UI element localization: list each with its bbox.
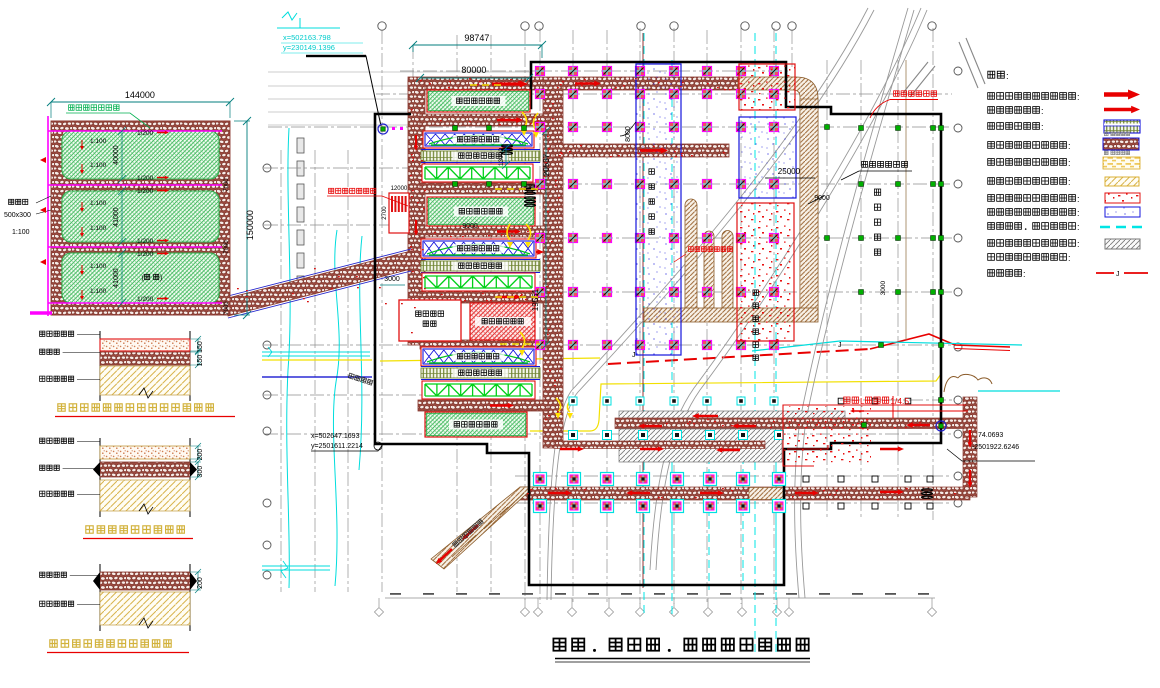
svg-text::: : — [1077, 194, 1080, 204]
svg-text:J: J — [1116, 271, 1120, 278]
svg-text:150: 150 — [197, 341, 204, 353]
svg-text:12000: 12000 — [391, 186, 408, 192]
svg-text:L: L — [860, 396, 865, 406]
svg-text:1/200: 1/200 — [137, 251, 154, 258]
svg-text:150000: 150000 — [245, 210, 255, 240]
svg-text::: : — [1023, 269, 1026, 279]
svg-text:-2501922.6246: -2501922.6246 — [972, 444, 1019, 451]
svg-text:1:100: 1:100 — [90, 162, 107, 169]
svg-text::: : — [1077, 239, 1080, 249]
svg-text::: : — [1006, 71, 1009, 82]
svg-text::: : — [1077, 208, 1080, 218]
svg-text:1/200: 1/200 — [137, 175, 154, 182]
svg-text::: : — [1068, 253, 1071, 263]
svg-text:1:100: 1:100 — [90, 200, 107, 207]
svg-text:7000: 7000 — [224, 301, 230, 315]
svg-text:1:100: 1:100 — [12, 229, 30, 236]
svg-text:1/200: 1/200 — [137, 238, 154, 245]
svg-text:3000: 3000 — [384, 276, 400, 283]
svg-text:200: 200 — [197, 577, 204, 589]
svg-text:74.0693: 74.0693 — [978, 432, 1003, 439]
svg-text:41000: 41000 — [113, 207, 120, 227]
svg-text::: : — [1041, 106, 1044, 116]
svg-text:7000: 7000 — [224, 240, 230, 254]
svg-text::: : — [1068, 177, 1071, 187]
svg-text:40000: 40000 — [113, 145, 120, 165]
svg-text:y=230149.1396: y=230149.1396 — [283, 43, 335, 52]
svg-text::: : — [1077, 222, 1080, 232]
svg-text:): ) — [160, 275, 162, 282]
svg-text:J: J — [838, 342, 842, 349]
svg-text:9000: 9000 — [814, 195, 830, 202]
svg-text:9000: 9000 — [462, 223, 478, 230]
svg-text:500x300: 500x300 — [4, 212, 31, 219]
svg-text:98747: 98747 — [464, 33, 489, 43]
svg-text:J: J — [632, 352, 636, 359]
svg-text:1:100: 1:100 — [90, 138, 107, 145]
svg-text:25000: 25000 — [778, 167, 801, 176]
svg-text:1:100: 1:100 — [90, 225, 107, 232]
svg-text::: : — [1077, 92, 1080, 102]
svg-text:1:100: 1:100 — [90, 288, 107, 295]
svg-text:7000: 7000 — [224, 178, 230, 192]
svg-text:1/200: 1/200 — [137, 296, 154, 303]
svg-text:200: 200 — [197, 449, 204, 461]
svg-text:2700: 2700 — [382, 206, 388, 220]
svg-text::: : — [1068, 141, 1071, 151]
svg-text:1/200: 1/200 — [137, 188, 154, 195]
svg-text:41000: 41000 — [113, 268, 120, 288]
svg-text:3000: 3000 — [880, 280, 887, 295]
svg-text:144000: 144000 — [125, 90, 155, 100]
svg-text:19561: 19561 — [531, 288, 540, 311]
svg-text:y=2501611.2214: y=2501611.2214 — [311, 443, 363, 450]
svg-text::: : — [1068, 158, 1071, 168]
svg-text:80000: 80000 — [461, 65, 486, 75]
svg-text:x=502647.1693: x=502647.1693 — [311, 433, 360, 440]
svg-text:300: 300 — [197, 466, 204, 478]
svg-text:20537: 20537 — [542, 153, 551, 176]
svg-text:x=502163.798: x=502163.798 — [283, 33, 331, 42]
svg-text:150: 150 — [197, 355, 204, 367]
svg-text:13000: 13000 — [498, 148, 505, 166]
svg-text:1/200: 1/200 — [137, 130, 154, 137]
svg-text::: : — [1041, 122, 1044, 132]
svg-text:1:100: 1:100 — [90, 263, 107, 270]
